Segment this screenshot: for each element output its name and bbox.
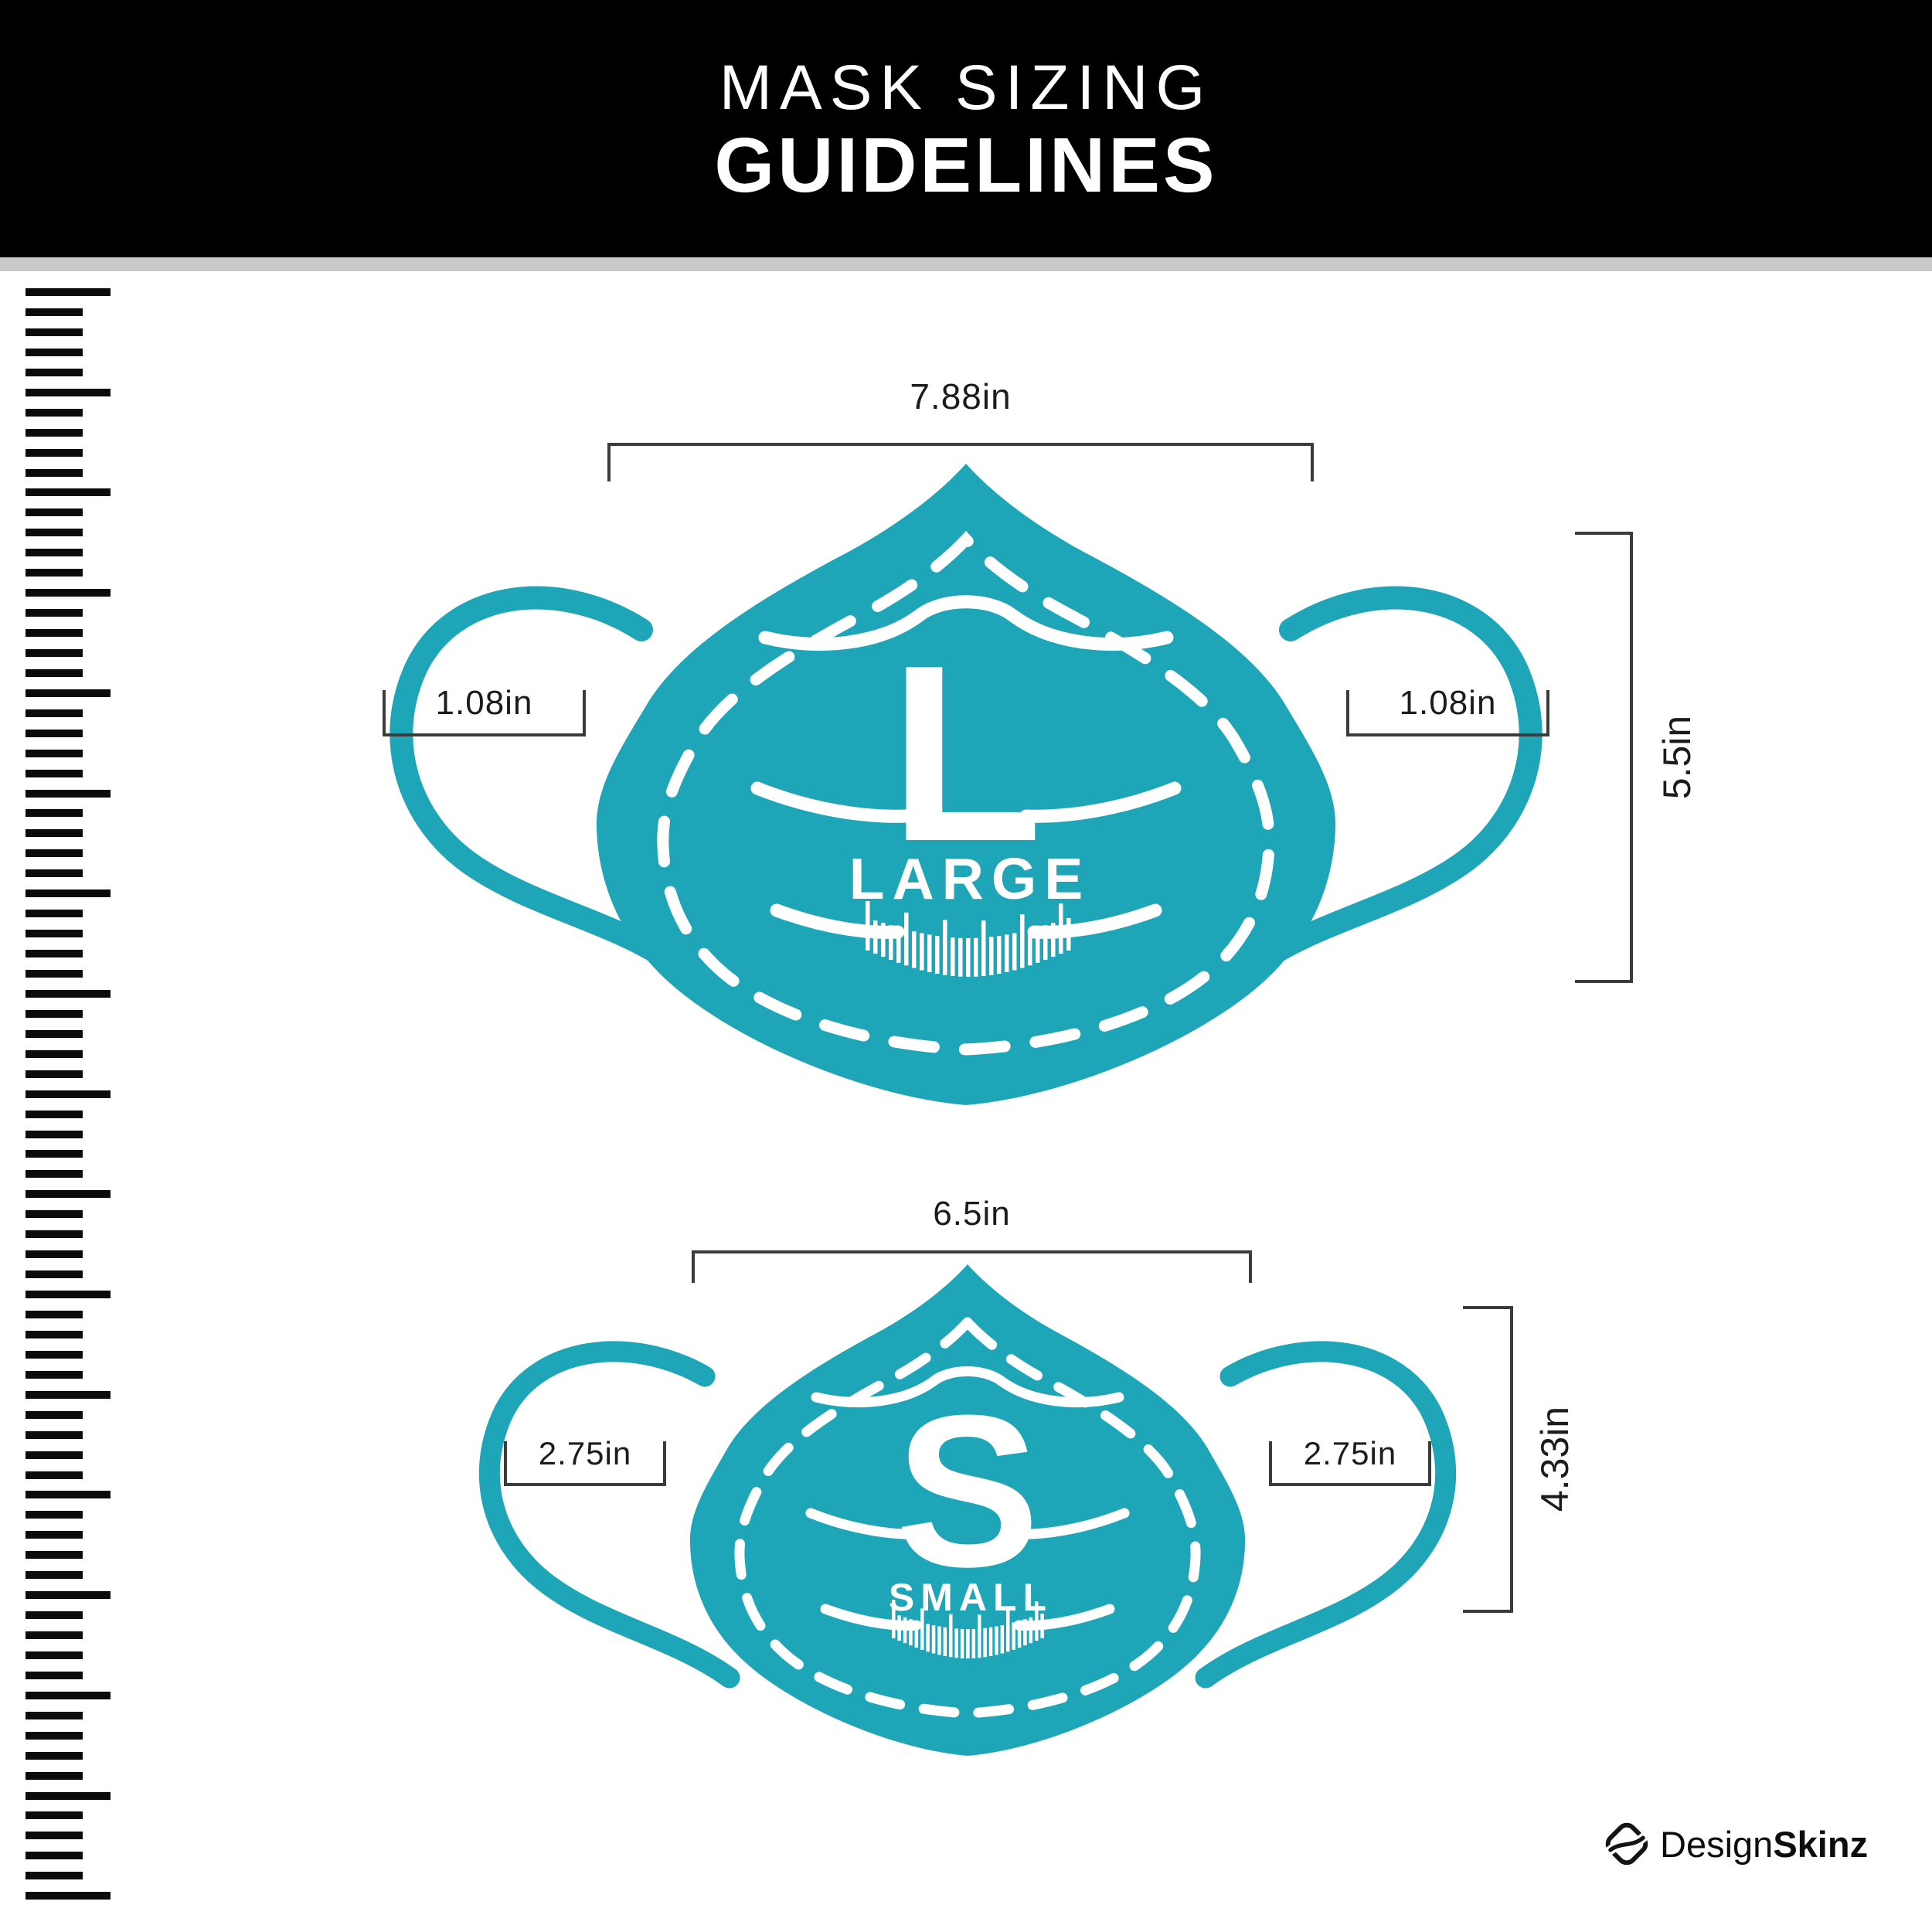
brand-mark-icon — [1601, 1818, 1652, 1870]
ruler-tick — [26, 869, 83, 877]
ruler-tick — [26, 649, 83, 657]
large-mask-graphic: LLARGE — [386, 448, 1577, 1144]
ruler-tick — [26, 569, 83, 577]
ruler-tick — [26, 1811, 83, 1819]
large-top-width-bracket — [607, 443, 1314, 481]
ruler-fan-tick — [997, 936, 1002, 974]
large-ear-left-label: 1.08in — [386, 684, 583, 723]
ruler-fan-tick — [951, 937, 955, 976]
ruler-tick — [26, 1131, 83, 1138]
ruler-fan-tick — [932, 1625, 936, 1654]
ruler-tick — [26, 449, 83, 457]
ruler-tick — [26, 1291, 111, 1298]
ruler-tick — [26, 1250, 83, 1258]
ruler-tick — [26, 1732, 83, 1740]
ruler-tick — [26, 1752, 83, 1760]
ruler-tick — [26, 629, 83, 637]
mask-size-label: SMALL — [889, 1576, 1053, 1619]
brand-logo: DesignSkinz — [1601, 1818, 1868, 1870]
ruler-fan-tick — [944, 1628, 947, 1656]
ruler-tick — [26, 1571, 83, 1579]
ruler-tick — [26, 1371, 83, 1379]
ruler-tick — [26, 288, 111, 296]
ruler-fan-tick — [989, 1628, 993, 1656]
ruler-tick — [26, 889, 111, 897]
ruler-tick — [26, 849, 83, 857]
ruler-tick — [26, 910, 83, 917]
ruler-tick — [26, 1010, 83, 1018]
ruler-fan-tick — [978, 1614, 981, 1658]
ruler-tick — [26, 1772, 83, 1780]
ruler-tick — [26, 750, 83, 757]
ruler-fan-tick — [1029, 1617, 1033, 1643]
ruler-tick — [26, 488, 111, 496]
ruler-tick — [26, 689, 111, 697]
ruler-tick — [26, 389, 111, 396]
ruler-tick — [26, 1852, 83, 1859]
ruler-fan-tick — [912, 931, 917, 968]
ruler-tick — [26, 790, 111, 798]
ruler-fan-tick — [889, 925, 893, 960]
large-height-bracket — [1575, 532, 1633, 983]
ruler-fan-tick — [1028, 930, 1032, 966]
ruler-tick — [26, 529, 83, 536]
ruler-tick — [26, 930, 83, 937]
ruler-tick — [26, 1491, 111, 1498]
small-ear-right-bracket: 2.75in — [1269, 1441, 1431, 1486]
ruler-fan-tick — [1023, 1619, 1027, 1645]
ruler-tick — [26, 1551, 83, 1559]
ruler-fan-tick — [949, 1614, 953, 1658]
ruler-tick — [26, 950, 83, 957]
ruler-tick — [26, 1792, 111, 1800]
ruler-fan-tick — [896, 927, 901, 963]
ruler-tick — [26, 1331, 83, 1338]
ruler-fan-tick — [961, 1629, 964, 1658]
ruler-tick — [26, 1611, 83, 1619]
header: MASK SIZING GUIDELINES — [0, 0, 1932, 257]
ruler-tick — [26, 1090, 111, 1098]
ruler-tick — [26, 1111, 83, 1118]
ruler-tick — [26, 308, 83, 316]
ruler-fan-tick — [958, 938, 963, 977]
ruler-tick — [26, 469, 83, 477]
header-divider — [0, 257, 1932, 271]
small-ear-right-label: 2.75in — [1272, 1435, 1428, 1472]
ruler-fan-tick — [1001, 1625, 1005, 1654]
ruler-tick — [26, 589, 111, 597]
ruler-tick — [26, 1631, 83, 1639]
ruler-tick — [26, 1050, 83, 1058]
ruler-tick — [26, 1150, 83, 1158]
ruler-tick — [26, 829, 83, 837]
small-height-bracket — [1463, 1306, 1513, 1613]
ruler-fan-tick — [1018, 1621, 1022, 1648]
ruler-tick — [26, 1672, 83, 1679]
ruler-fan-tick — [881, 923, 886, 957]
small-ear-left-label: 2.75in — [507, 1435, 663, 1472]
ruler-fan-tick — [974, 938, 978, 977]
ruler-tick — [26, 1351, 83, 1359]
ruler-fan-tick — [943, 920, 947, 975]
large-height-label: 5.5in — [1655, 680, 1699, 835]
ruler-tick — [26, 1411, 83, 1419]
ruler-fan-tick — [1036, 927, 1040, 963]
ruler-fan-tick — [1005, 934, 1009, 972]
ruler-tick — [26, 349, 83, 356]
ruler-tick — [26, 770, 83, 777]
small-top-width-bracket — [692, 1250, 1252, 1283]
ruler-tick — [26, 1431, 83, 1439]
ruler-fan-tick — [897, 1615, 901, 1641]
ruler-tick — [26, 1531, 83, 1539]
ruler-tick — [26, 1832, 83, 1839]
large-ear-right-bracket: 1.08in — [1346, 690, 1549, 736]
small-height-label: 4.33in — [1533, 1382, 1577, 1536]
ruler-tick — [26, 409, 83, 417]
small-top-width-label: 6.5in — [692, 1195, 1252, 1233]
ruler-fan-tick — [1066, 918, 1071, 951]
ruler-tick — [26, 730, 83, 737]
ruler-tick — [26, 1170, 83, 1178]
ruler-tick — [26, 1712, 83, 1719]
large-ear-right-label: 1.08in — [1349, 684, 1546, 723]
large-top-width-label: 7.88in — [607, 376, 1314, 417]
ruler-fan-tick — [904, 913, 909, 966]
small-ear-left-bracket: 2.75in — [504, 1441, 666, 1486]
ruler-fan-tick — [903, 1617, 907, 1643]
ruler-tick — [26, 369, 83, 376]
ruler-tick — [26, 1692, 111, 1699]
ruler-fan-tick — [954, 1628, 958, 1658]
ruler-tick — [26, 1892, 111, 1900]
ruler-tick — [26, 549, 83, 556]
ruler-fan-tick — [1043, 925, 1048, 960]
ruler-tick — [26, 990, 111, 998]
ruler-fan-tick — [995, 1627, 998, 1655]
ruler-tick — [26, 509, 83, 516]
ruler-tick — [26, 1190, 111, 1198]
brand-name-regular: Design — [1660, 1824, 1773, 1865]
ruler-tick — [26, 1270, 83, 1278]
ear-loop-left — [489, 1352, 730, 1678]
ruler-tick — [26, 709, 83, 717]
ruler-tick — [26, 1030, 83, 1038]
ruler-fan-tick — [873, 920, 878, 954]
ruler-fan-tick — [981, 920, 986, 976]
ruler-tick — [26, 1391, 111, 1399]
ruler-tick — [26, 970, 83, 978]
ruler-fan-tick — [920, 934, 924, 971]
ruler-fan-tick — [1012, 934, 1017, 971]
ruler-fan-tick — [937, 1627, 941, 1655]
ruler-tick — [26, 669, 83, 677]
page-title-line2: GUIDELINES — [714, 124, 1217, 207]
ruler-tick — [26, 1872, 83, 1879]
ruler-tick — [26, 809, 83, 817]
ruler-fan-tick — [972, 1629, 976, 1658]
ruler-fan-tick — [935, 936, 940, 974]
ruler-tick — [26, 1511, 83, 1519]
ruler-tick — [26, 1451, 83, 1459]
brand-name: DesignSkinz — [1660, 1823, 1868, 1866]
ear-loop-right — [1206, 1352, 1446, 1678]
ruler-fan-tick — [915, 1621, 919, 1648]
ruler-fan-tick — [926, 1624, 930, 1651]
ruler-graphic — [0, 0, 155, 1932]
ruler-fan-tick — [1051, 923, 1056, 957]
mask-size-label: LARGE — [849, 846, 1091, 911]
ruler-fan-tick — [989, 937, 994, 975]
ruler-fan-tick — [909, 1619, 913, 1645]
ruler-fan-tick — [1020, 914, 1025, 968]
ruler-fan-tick — [966, 938, 971, 977]
ruler-fan-tick — [1012, 1622, 1015, 1649]
brand-name-bold: Skinz — [1773, 1824, 1868, 1865]
ruler-tick — [26, 1070, 83, 1078]
ruler-tick — [26, 1230, 83, 1238]
ruler-tick — [26, 429, 83, 437]
ruler-tick — [26, 1591, 111, 1599]
ruler-tick — [26, 609, 83, 617]
large-ear-left-bracket: 1.08in — [383, 690, 586, 736]
ruler-tick — [26, 1210, 83, 1218]
ruler-fan-tick — [983, 1628, 987, 1658]
ruler-fan-tick — [927, 934, 932, 972]
ruler-tick — [26, 1311, 83, 1318]
ruler-fan-tick — [966, 1629, 970, 1658]
page-title-line1: MASK SIZING — [719, 53, 1213, 124]
ruler-tick — [26, 328, 83, 336]
ruler-tick — [26, 1651, 83, 1659]
small-mask-graphic: SSMALL — [481, 1249, 1454, 1790]
ruler-tick — [26, 1471, 83, 1479]
